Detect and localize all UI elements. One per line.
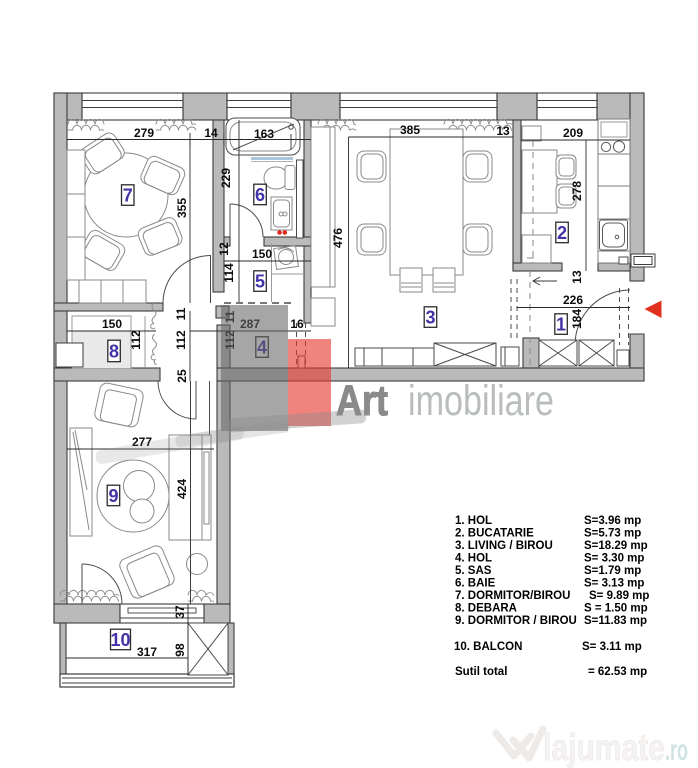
svg-text:317: 317 <box>137 645 157 659</box>
svg-text:7. DORMITOR/BIROU: 7. DORMITOR/BIROU <box>455 590 570 602</box>
svg-text:98: 98 <box>173 643 187 657</box>
svg-text:114: 114 <box>222 263 236 283</box>
svg-text:10. BALCON: 10. BALCON <box>454 641 522 653</box>
svg-text:112: 112 <box>174 330 188 350</box>
svg-text:229: 229 <box>219 168 233 188</box>
svg-text:S=11.83 mp: S=11.83 mp <box>584 615 647 627</box>
svg-text:6. BAIE: 6. BAIE <box>455 578 496 590</box>
svg-text:13: 13 <box>570 270 584 284</box>
svg-text:10: 10 <box>110 630 130 650</box>
svg-text:9. DORMITOR / BIROU: 9. DORMITOR / BIROU <box>455 615 577 627</box>
svg-text:.ro: .ro <box>665 734 688 767</box>
svg-text:S=18.29 mp: S=18.29 mp <box>584 540 648 552</box>
svg-text:424: 424 <box>175 479 189 499</box>
svg-text:150: 150 <box>102 317 122 331</box>
svg-text:7: 7 <box>123 185 133 205</box>
svg-text:S=5.73 mp: S=5.73 mp <box>584 528 641 540</box>
svg-text:S = 1.50 mp: S = 1.50 mp <box>584 603 648 615</box>
svg-text:S=3.96 mp: S=3.96 mp <box>584 515 641 527</box>
svg-text:Sutil total: Sutil total <box>455 666 507 678</box>
svg-text:163: 163 <box>254 127 274 141</box>
svg-text:4. HOL: 4. HOL <box>455 553 492 565</box>
svg-text:Art: Art <box>336 377 388 425</box>
svg-text:11: 11 <box>174 307 188 320</box>
svg-text:3. LIVING / BIROU: 3. LIVING / BIROU <box>455 540 553 552</box>
svg-text:3: 3 <box>425 307 435 327</box>
svg-text:8. DEBARA: 8. DEBARA <box>455 603 517 615</box>
svg-text:9: 9 <box>108 486 118 506</box>
svg-text:1. HOL: 1. HOL <box>455 515 492 527</box>
svg-text:1: 1 <box>556 314 566 334</box>
svg-text:2. BUCATARIE: 2. BUCATARIE <box>455 528 534 540</box>
svg-text:16: 16 <box>290 317 304 331</box>
svg-text:112: 112 <box>129 330 143 350</box>
svg-text:lajumate: lajumate <box>543 727 665 768</box>
svg-text:25: 25 <box>175 369 189 383</box>
svg-text:imobiliare: imobiliare <box>408 377 554 425</box>
svg-text:5: 5 <box>255 271 265 291</box>
svg-text:S= 3.30 mp: S= 3.30 mp <box>584 553 644 565</box>
svg-text:355: 355 <box>175 198 189 218</box>
svg-text:2: 2 <box>557 223 567 243</box>
svg-text:226: 226 <box>563 293 583 307</box>
svg-text:385: 385 <box>400 123 420 137</box>
svg-text:150: 150 <box>252 247 272 261</box>
svg-text:6: 6 <box>255 185 265 205</box>
svg-text:13: 13 <box>496 124 510 138</box>
svg-text:12: 12 <box>217 242 231 256</box>
svg-text:5. SAS: 5. SAS <box>455 565 492 577</box>
svg-text:476: 476 <box>331 228 345 248</box>
svg-text:14: 14 <box>204 126 218 140</box>
svg-text:278: 278 <box>570 181 584 201</box>
svg-text:S= 9.89 mp: S= 9.89 mp <box>589 590 649 602</box>
svg-text:S= 3.11 mp: S= 3.11 mp <box>582 641 642 653</box>
svg-text:184: 184 <box>570 309 584 329</box>
svg-text:279: 279 <box>134 126 154 140</box>
svg-text:209: 209 <box>563 126 583 140</box>
svg-text:= 62.53 mp: = 62.53 mp <box>588 666 647 678</box>
svg-text:S=1.79 mp: S=1.79 mp <box>584 565 641 577</box>
svg-text:8: 8 <box>109 341 119 361</box>
svg-text:S= 3.13 mp: S= 3.13 mp <box>584 578 644 590</box>
svg-text:37: 37 <box>173 605 187 619</box>
